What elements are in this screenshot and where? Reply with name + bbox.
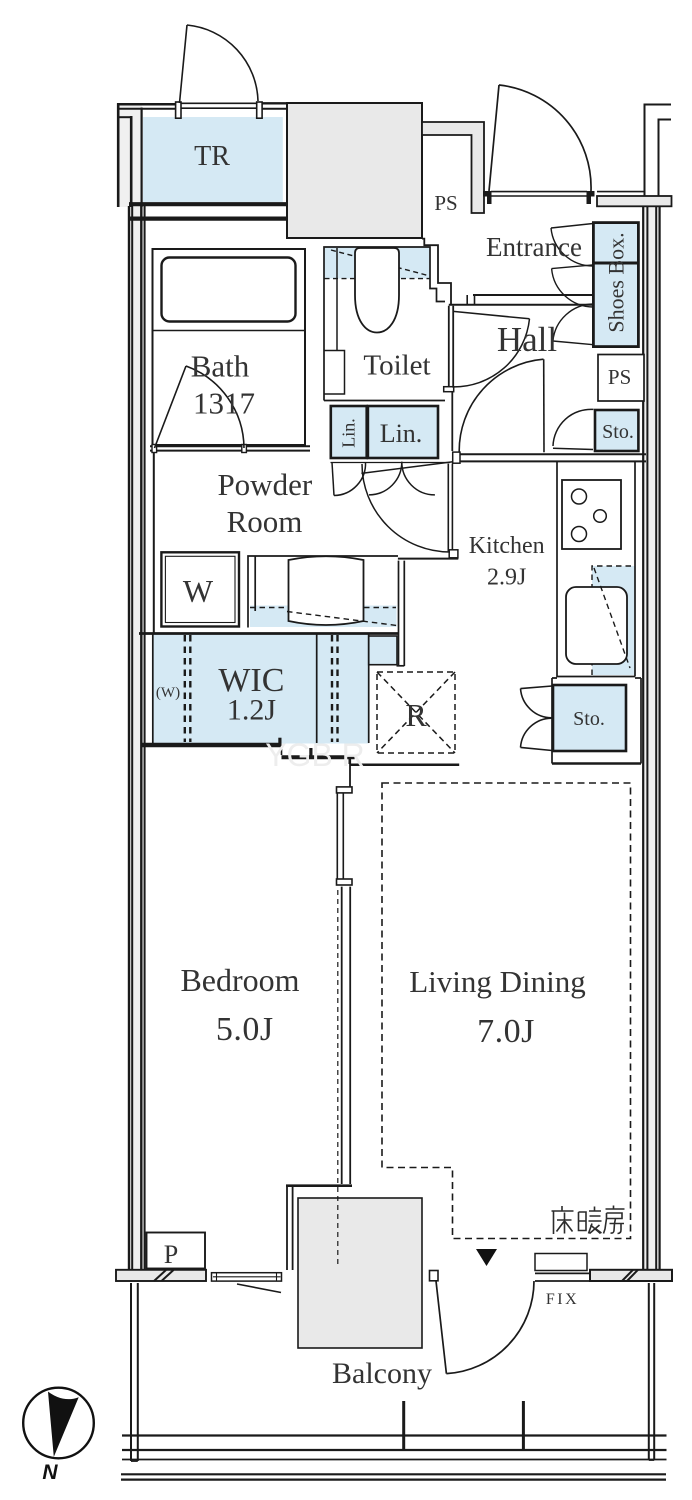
svg-text:Bath: Bath	[191, 349, 250, 384]
svg-text:5.0J: 5.0J	[216, 1011, 274, 1048]
svg-text:PS: PS	[434, 191, 457, 215]
svg-text:Kitchen: Kitchen	[469, 533, 545, 559]
svg-text:Lin.: Lin.	[380, 419, 423, 448]
svg-text:Toilet: Toilet	[363, 350, 430, 382]
svg-text:Entrance: Entrance	[486, 232, 582, 262]
svg-text:Sto.: Sto.	[602, 421, 634, 443]
svg-text:W: W	[183, 573, 214, 609]
svg-text:Hall: Hall	[497, 320, 558, 359]
svg-text:Sto.: Sto.	[573, 708, 605, 730]
svg-text:FIX: FIX	[546, 1291, 579, 1308]
svg-text:R: R	[405, 697, 427, 733]
svg-text:Powder: Powder	[217, 467, 312, 502]
svg-text:TR: TR	[194, 141, 230, 172]
svg-text:(W): (W)	[156, 685, 180, 701]
svg-text:Shoes Box.: Shoes Box.	[604, 232, 629, 332]
svg-text:1.2J: 1.2J	[227, 694, 277, 727]
svg-text:Lin.: Lin.	[339, 418, 359, 448]
svg-text:N: N	[42, 1461, 58, 1484]
svg-text:YGB R: YGB R	[265, 737, 365, 773]
svg-text:Room: Room	[227, 504, 303, 539]
svg-text:Bedroom: Bedroom	[180, 962, 299, 998]
svg-text:P: P	[164, 1240, 178, 1269]
svg-text:7.0J: 7.0J	[477, 1013, 535, 1050]
svg-text:Balcony: Balcony	[332, 1357, 432, 1390]
svg-text:1317: 1317	[193, 386, 255, 421]
svg-text:Living Dining: Living Dining	[409, 964, 586, 999]
svg-text:2.9J: 2.9J	[487, 565, 526, 591]
svg-text:PS: PS	[608, 365, 631, 389]
